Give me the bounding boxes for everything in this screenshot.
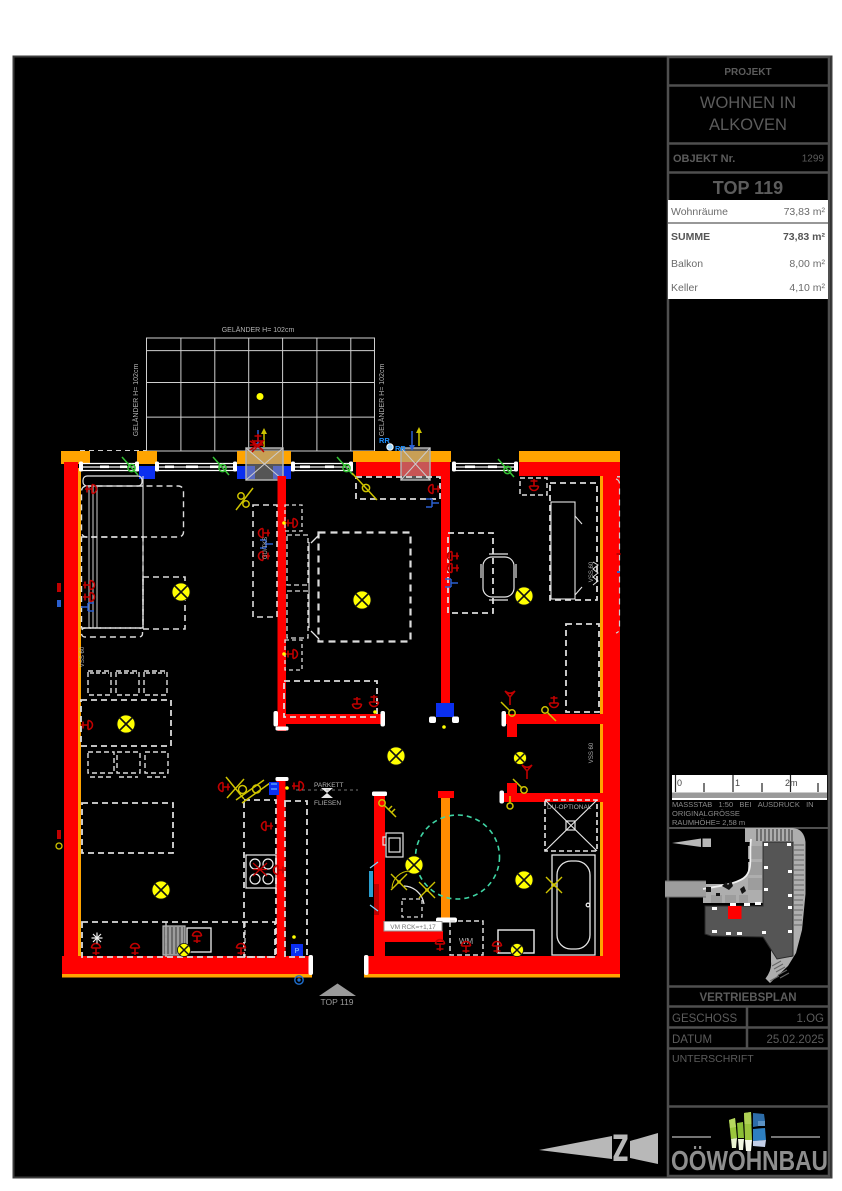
svg-text:PROJEKT: PROJEKT [724,67,771,78]
svg-text:UNTERSCHRIFT: UNTERSCHRIFT [672,1053,754,1065]
svg-text:73,83 m²: 73,83 m² [783,231,826,243]
svg-text:1: 1 [735,778,740,788]
svg-text:OBJEKT Nr.: OBJEKT Nr. [673,153,735,165]
svg-text:VM RCK=+1,17: VM RCK=+1,17 [390,924,436,931]
svg-text:SUMME: SUMME [671,231,710,243]
svg-text:MASSSTAB 1:50 BEI AUSDRU: MASSSTAB 1:50 BEI AUSDRUCK IN [672,800,814,809]
svg-text:VSS 60: VSS 60 [80,646,86,667]
svg-text:73,83 m²: 73,83 m² [784,206,826,218]
svg-text:2m: 2m [785,778,798,788]
svg-text:ORIGINALGRÖSSE: ORIGINALGRÖSSE [672,809,740,818]
svg-text:4,10 m²: 4,10 m² [789,282,825,294]
svg-text:VSS 60: VSS 60 [589,742,595,763]
svg-text:P: P [295,948,300,955]
svg-text:Balkon: Balkon [671,258,703,270]
svg-text:1299: 1299 [802,154,825,165]
svg-text:TOP 119: TOP 119 [713,178,783,198]
svg-text:GELÄNDER H= 102cm: GELÄNDER H= 102cm [222,326,295,334]
svg-text:VSS 60: VSS 60 [589,561,595,582]
svg-text:RAUMHÖHE= 2,58 m: RAUMHÖHE= 2,58 m [672,818,745,827]
svg-text:0: 0 [677,778,682,788]
svg-text:TOP 119: TOP 119 [320,997,353,1007]
svg-text:DU-OPTIONAL: DU-OPTIONAL [547,804,592,811]
svg-text:VERTRIEBSPLAN: VERTRIEBSPLAN [699,992,796,1004]
svg-text:ALKOVEN: ALKOVEN [709,116,787,134]
svg-text:Wohnräume: Wohnräume [671,206,728,218]
svg-text:8,00 m²: 8,00 m² [789,258,825,270]
svg-text:1.OG: 1.OG [797,1013,825,1025]
svg-text:Keller: Keller [671,282,698,294]
svg-text:GU/TKS: GU/TKS [263,537,269,559]
svg-text:GELÄNDER H= 102cm: GELÄNDER H= 102cm [132,364,140,437]
svg-text:PARKETT: PARKETT [314,782,344,789]
svg-text:OÖWOHNBAU: OÖWOHNBAU [671,1145,828,1176]
svg-text:GELÄNDER H= 102cm: GELÄNDER H= 102cm [378,364,386,437]
svg-text:GESCHOSS: GESCHOSS [672,1013,738,1025]
svg-text:25.02.2025: 25.02.2025 [766,1034,824,1046]
svg-text:WOHNEN IN: WOHNEN IN [700,94,796,112]
svg-text:RR: RR [395,444,406,453]
svg-text:FLIESEN: FLIESEN [314,800,341,807]
svg-text:DATUM: DATUM [672,1034,712,1046]
